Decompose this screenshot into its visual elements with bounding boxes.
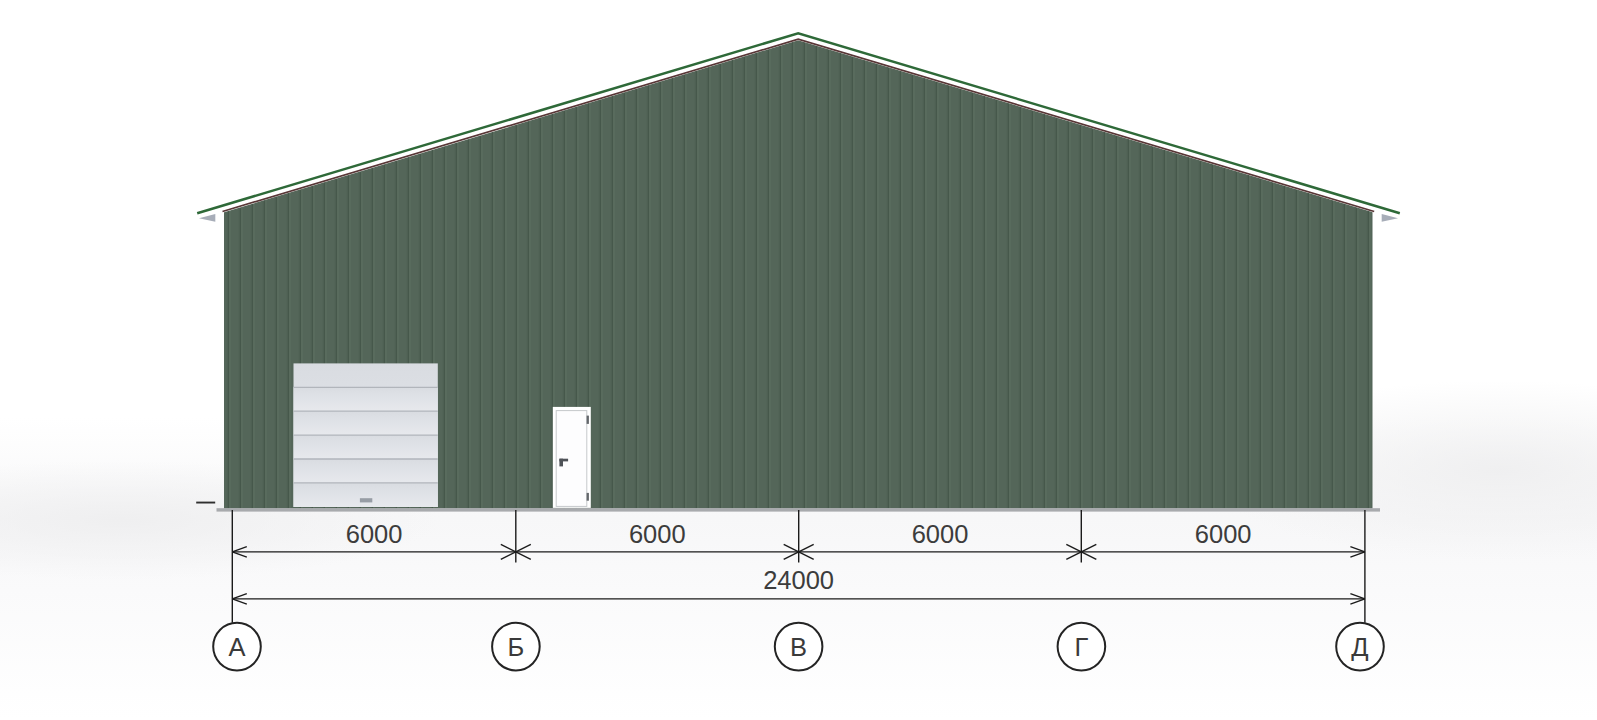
svg-text:В: В <box>790 633 807 661</box>
svg-text:6000: 6000 <box>346 520 403 548</box>
svg-text:6000: 6000 <box>912 520 969 548</box>
svg-text:Б: Б <box>508 633 525 661</box>
svg-text:6000: 6000 <box>629 520 686 548</box>
svg-text:А: А <box>228 633 245 661</box>
svg-text:Д: Д <box>1351 633 1368 661</box>
svg-text:Г: Г <box>1074 633 1088 661</box>
svg-text:24000: 24000 <box>763 566 834 594</box>
svg-text:6000: 6000 <box>1195 520 1252 548</box>
